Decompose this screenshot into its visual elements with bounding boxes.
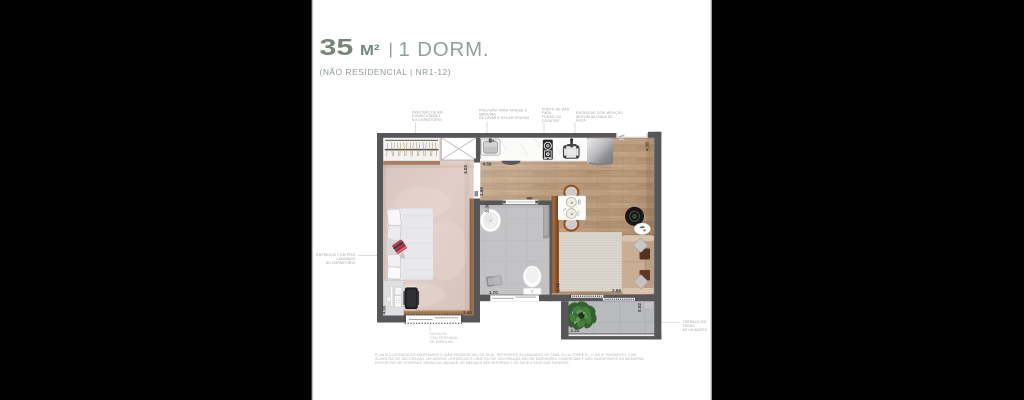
- svg-text:4.03: 4.03: [463, 165, 468, 174]
- svg-text:1.60: 1.60: [479, 187, 484, 196]
- svg-text:ÁGUA: ÁGUA: [576, 119, 587, 123]
- svg-text:M²: M²: [360, 42, 379, 58]
- svg-text:1 DORM.: 1 DORM.: [399, 39, 490, 61]
- svg-text:AS UNIDADES: AS UNIDADES: [683, 328, 708, 332]
- svg-text:2.22: 2.22: [571, 328, 580, 333]
- svg-text:2.69: 2.69: [612, 288, 621, 293]
- svg-text:2.40: 2.40: [463, 310, 472, 315]
- svg-text:NO DORMITÓRIO: NO DORMITÓRIO: [326, 260, 356, 265]
- svg-text:0.82: 0.82: [637, 303, 642, 312]
- svg-text:DESCRITIVO DE COMPRA E VENDA D: DESCRITIVO DE COMPRA E VENDA DA UNIDADE.…: [375, 360, 570, 365]
- svg-text:2.38: 2.38: [485, 203, 490, 212]
- svg-text:4.10: 4.10: [645, 142, 650, 151]
- svg-text:35: 35: [320, 35, 354, 61]
- svg-text:4.58: 4.58: [483, 162, 492, 167]
- svg-text:1.70: 1.70: [489, 290, 498, 295]
- svg-text:DE ENROLAR: DE ENROLAR: [430, 340, 454, 344]
- svg-text:2.49: 2.49: [556, 283, 561, 292]
- svg-text:NO DORMITÓRIO: NO DORMITÓRIO: [412, 117, 442, 122]
- svg-text:4.65: 4.65: [382, 305, 387, 314]
- svg-text:COOKTOP: COOKTOP: [542, 119, 560, 123]
- svg-text:DE LAVAR E SECAR ROUPAS: DE LAVAR E SECAR ROUPAS: [479, 116, 530, 120]
- svg-text:(NÃO RESIDENCIAL | NR1-12): (NÃO RESIDENCIAL | NR1-12): [320, 67, 452, 77]
